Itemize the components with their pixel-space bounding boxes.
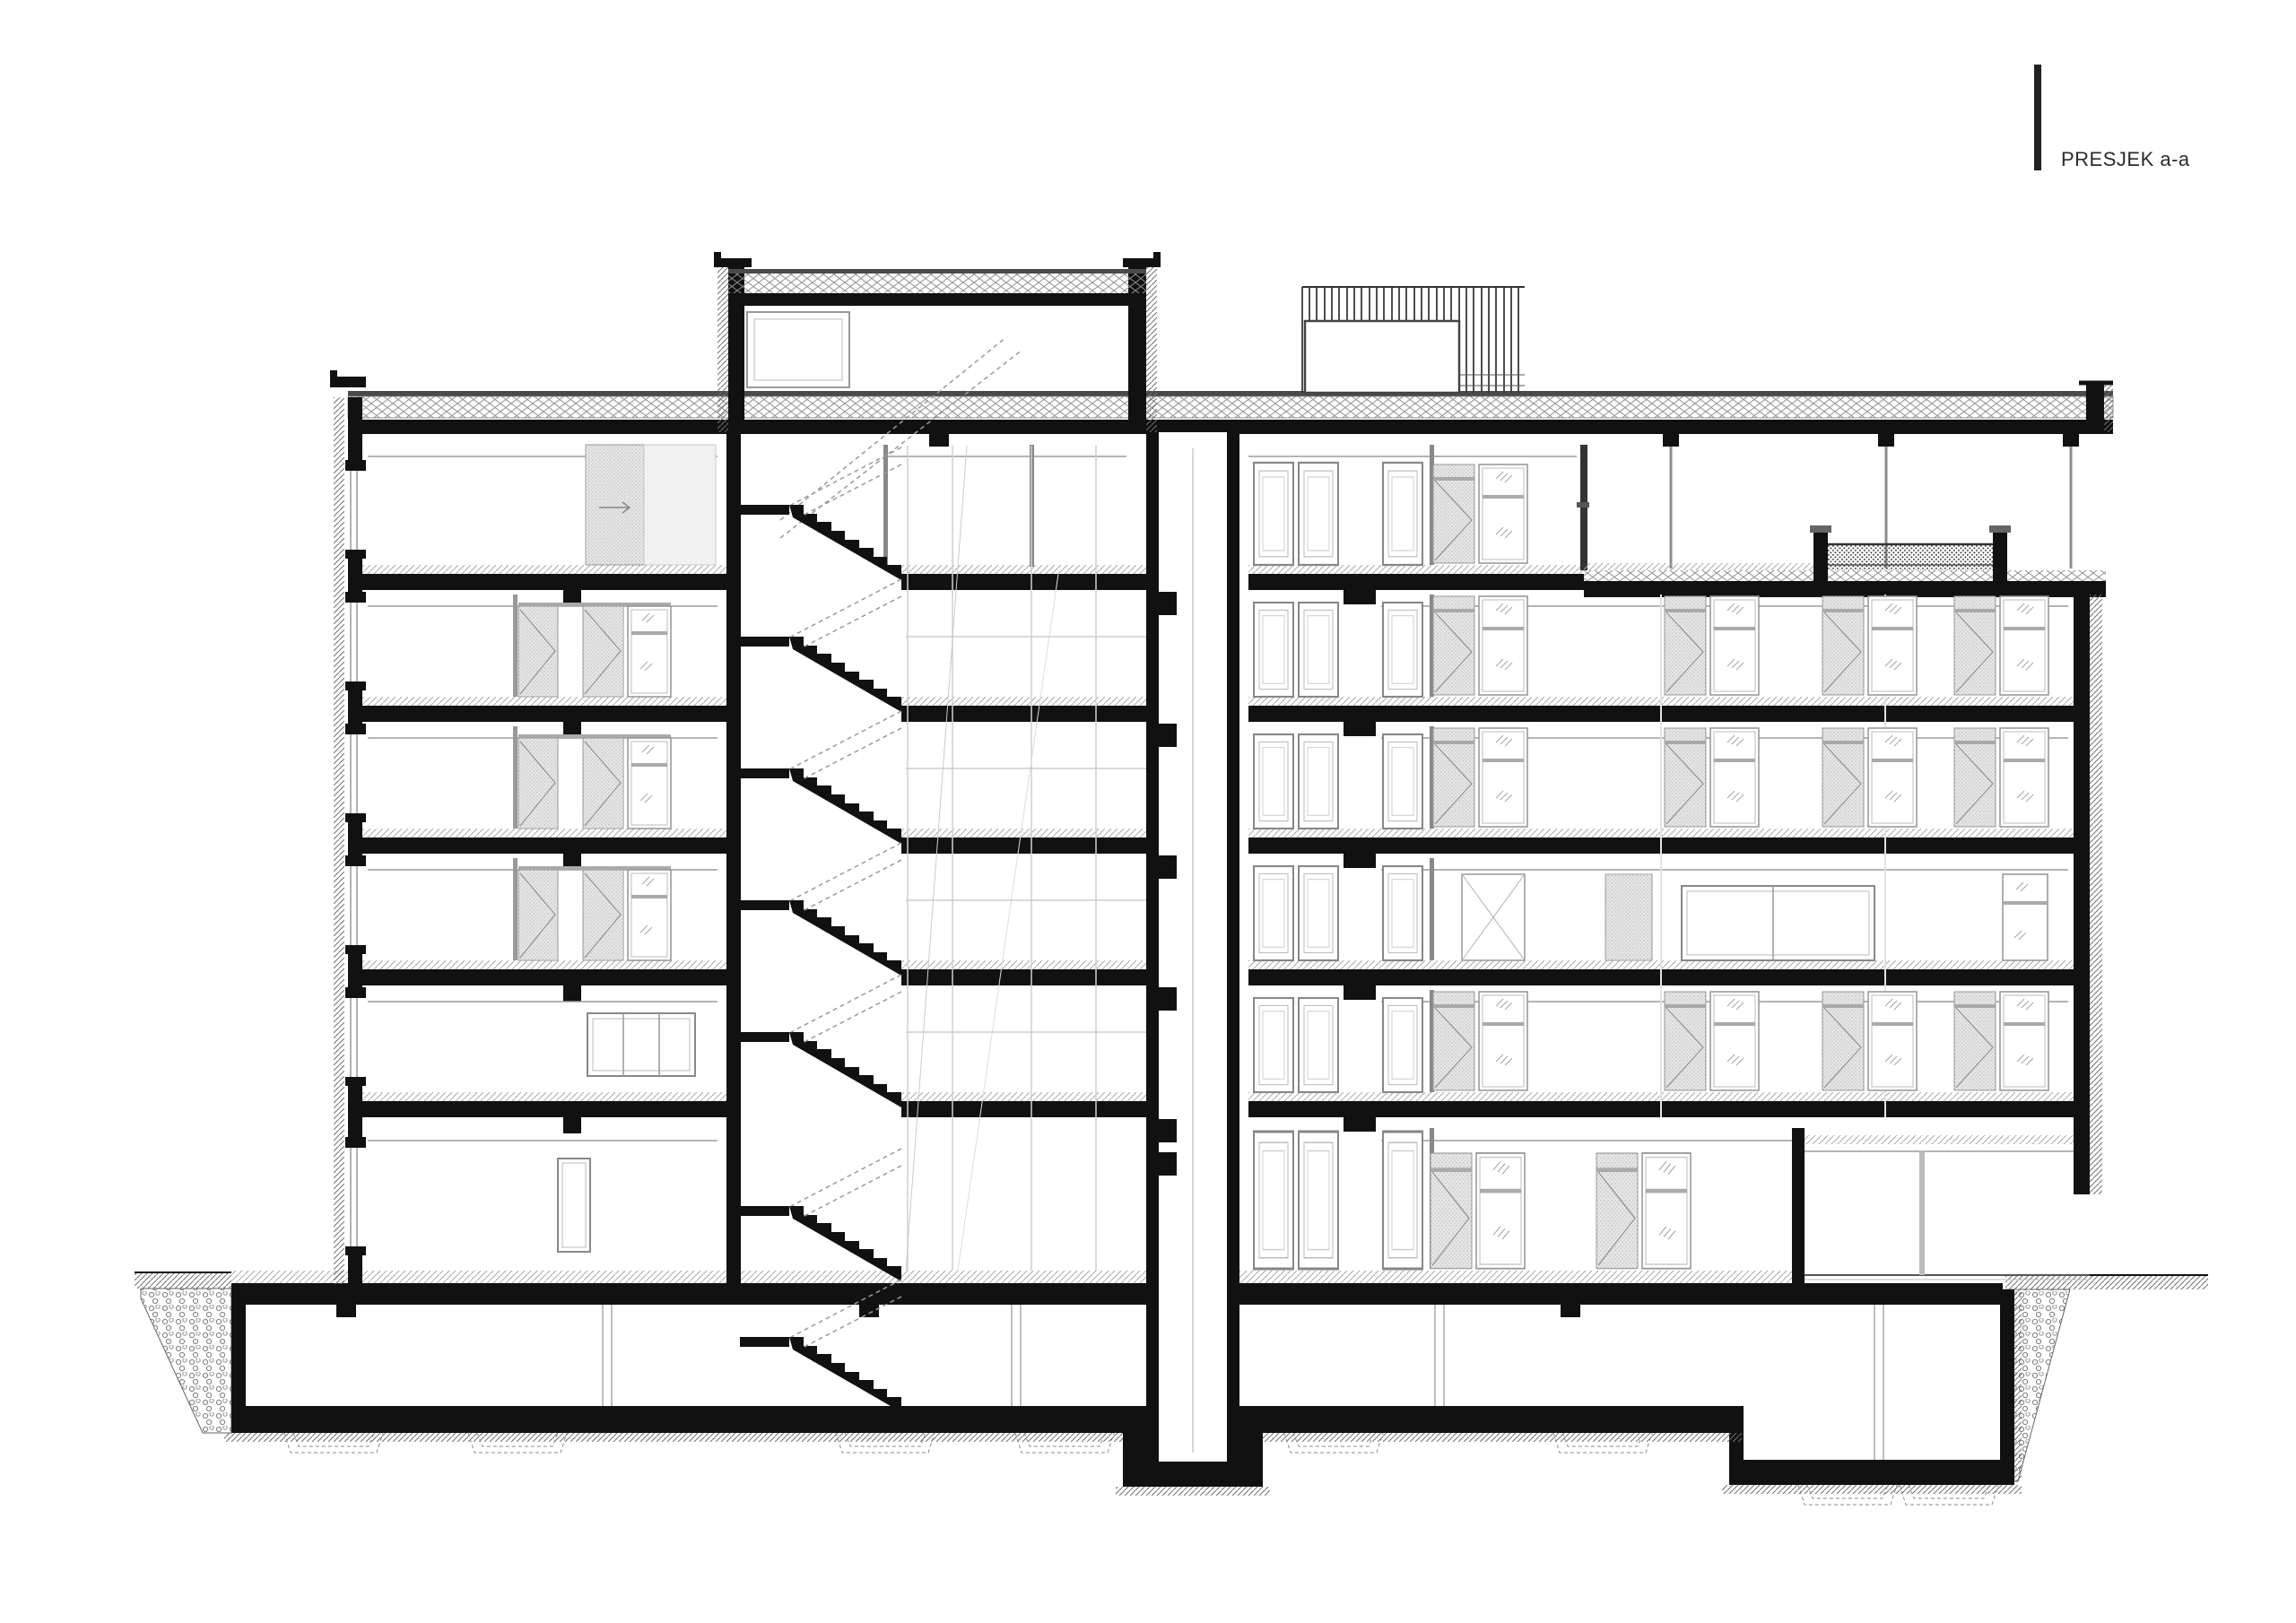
floor3-fittings: [1462, 874, 2048, 960]
title-block: PRESJEK a-a: [2034, 65, 2190, 170]
ground-end-wall: [1792, 1128, 1805, 1283]
rooftop-louver-screen: [1302, 287, 1525, 393]
duct-shaft: [586, 445, 716, 565]
rooftop-equipment-box: [1305, 321, 1459, 393]
stair-left-wall: [726, 432, 741, 1287]
drawing-sheet: PRESJEK a-a: [0, 0, 2296, 1623]
left-wing: [330, 370, 716, 1284]
drawing-title: PRESJEK a-a: [2061, 148, 2190, 170]
section-marker-bar: [2034, 65, 2041, 170]
skylight: [747, 312, 849, 387]
building-section-drawing: PRESJEK a-a: [0, 0, 2296, 1623]
left-window: [587, 1013, 695, 1076]
ground-door-frame: [558, 1159, 590, 1252]
right-facade: [2074, 595, 2102, 1194]
roof-terrace-band: [1577, 445, 2106, 597]
elevator-shaft: [1146, 432, 1239, 1462]
